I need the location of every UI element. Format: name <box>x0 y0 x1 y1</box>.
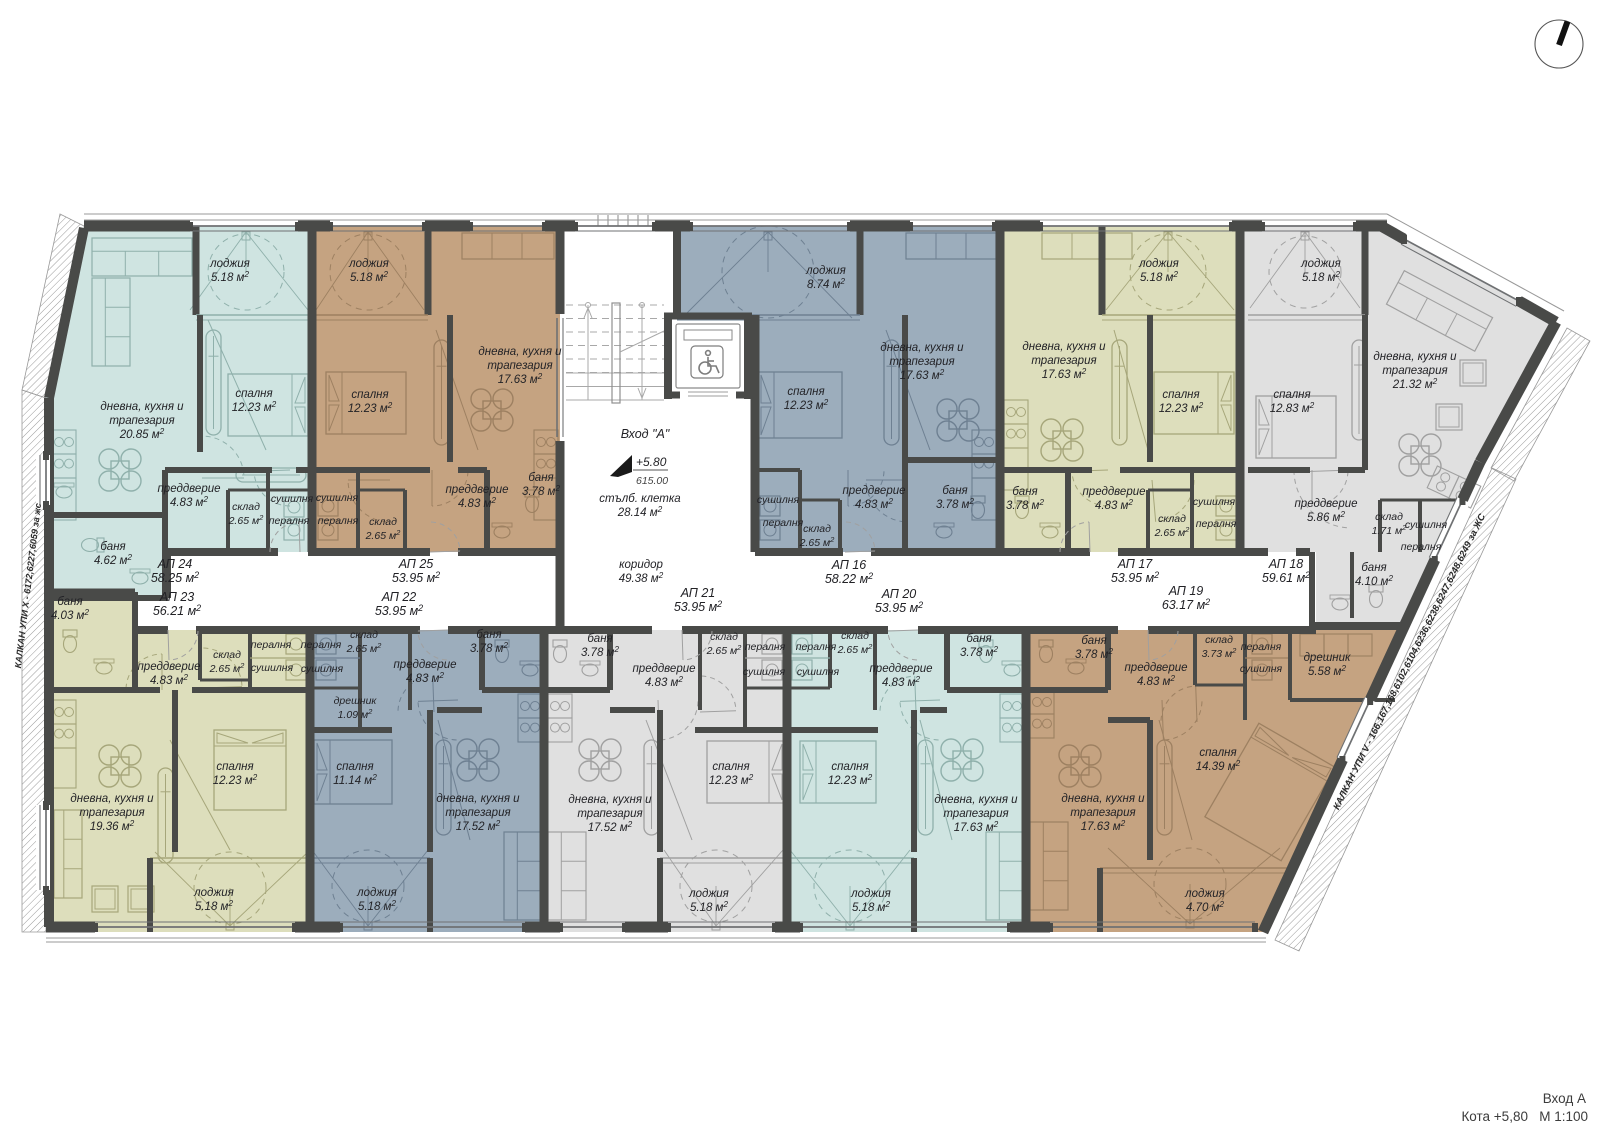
svg-text:4.62 м2: 4.62 м2 <box>94 552 132 567</box>
svg-text:АП 24: АП 24 <box>157 557 193 571</box>
svg-text:5.86 м2: 5.86 м2 <box>1307 509 1345 524</box>
svg-text:2.65 м2: 2.65 м2 <box>837 642 874 656</box>
svg-text:преддверие: преддверие <box>157 483 220 495</box>
svg-text:8.74 м2: 8.74 м2 <box>807 276 845 291</box>
svg-text:4.70 м2: 4.70 м2 <box>1186 899 1224 914</box>
svg-text:28.14 м2: 28.14 м2 <box>617 504 663 519</box>
svg-text:трапезария: трапезария <box>109 415 174 427</box>
svg-text:11.14 м2: 11.14 м2 <box>333 772 377 787</box>
svg-text:спалня: спалня <box>1162 389 1199 401</box>
svg-text:3.78 м2: 3.78 м2 <box>960 644 998 659</box>
svg-text:4.03 м2: 4.03 м2 <box>51 607 89 622</box>
svg-text:5.18 м2: 5.18 м2 <box>195 898 233 913</box>
svg-text:12.23 м2: 12.23 м2 <box>828 772 873 787</box>
svg-text:63.17 м2: 63.17 м2 <box>1162 597 1210 612</box>
svg-text:2.65 м2: 2.65 м2 <box>209 661 246 675</box>
svg-text:АП 25: АП 25 <box>398 557 434 571</box>
svg-text:5.18 м2: 5.18 м2 <box>690 899 728 914</box>
svg-text:53.95 м2: 53.95 м2 <box>1111 570 1159 585</box>
svg-text:трапезария: трапезария <box>1031 355 1096 367</box>
svg-text:баня: баня <box>587 633 612 645</box>
svg-text:баня: баня <box>528 472 553 484</box>
svg-text:дневна, кухня и: дневна, кухня и <box>880 342 964 354</box>
svg-text:12.23 м2: 12.23 м2 <box>709 772 754 787</box>
svg-text:58.22 м2: 58.22 м2 <box>825 571 873 586</box>
svg-text:АП 22: АП 22 <box>381 590 417 604</box>
svg-text:АП 18: АП 18 <box>1268 557 1304 571</box>
svg-text:4.83 м2: 4.83 м2 <box>458 495 496 510</box>
svg-text:53.95 м2: 53.95 м2 <box>392 570 440 585</box>
svg-text:Вход "А": Вход "А" <box>621 427 670 441</box>
svg-text:склад: склад <box>213 649 241 661</box>
svg-text:сушилня: сушилня <box>743 666 786 678</box>
svg-text:17.52 м2: 17.52 м2 <box>588 819 633 834</box>
svg-text:12.23 м2: 12.23 м2 <box>232 399 277 414</box>
svg-text:преддверие: преддверие <box>1124 662 1187 674</box>
svg-text:1.09 м2: 1.09 м2 <box>338 707 374 721</box>
svg-text:склад: склад <box>350 629 378 641</box>
svg-text:56.21 м2: 56.21 м2 <box>153 603 201 618</box>
svg-text:баня: баня <box>1081 635 1106 647</box>
svg-text:14.39 м2: 14.39 м2 <box>1196 758 1241 773</box>
svg-text:стълб. клетка: стълб. клетка <box>599 493 680 505</box>
svg-text:сушилня: сушилня <box>316 492 359 504</box>
svg-text:59.61 м2: 59.61 м2 <box>1262 570 1310 585</box>
svg-text:4.83 м2: 4.83 м2 <box>645 674 683 689</box>
svg-text:17.52 м2: 17.52 м2 <box>456 818 501 833</box>
svg-text:пералня: пералня <box>763 517 804 529</box>
svg-text:баня: баня <box>57 596 82 608</box>
svg-text:АП 20: АП 20 <box>881 587 917 601</box>
svg-text:17.63 м2: 17.63 м2 <box>1042 366 1087 381</box>
svg-text:2.65 м2: 2.65 м2 <box>1154 525 1191 539</box>
svg-text:2.65 м2: 2.65 м2 <box>706 643 743 657</box>
svg-text:баня: баня <box>942 485 967 497</box>
svg-text:20.85 м2: 20.85 м2 <box>119 426 165 441</box>
svg-text:3.73 м2: 3.73 м2 <box>1202 646 1238 660</box>
svg-text:+5.80: +5.80 <box>636 455 667 469</box>
svg-text:2.65 м2: 2.65 м2 <box>346 641 383 655</box>
svg-text:АП 23: АП 23 <box>159 590 195 604</box>
svg-text:3.78 м2: 3.78 м2 <box>1075 646 1113 661</box>
svg-text:склад: склад <box>710 631 738 643</box>
svg-text:49.38 м2: 49.38 м2 <box>619 570 664 585</box>
svg-text:53.95 м2: 53.95 м2 <box>875 600 923 615</box>
svg-text:4.83 м2: 4.83 м2 <box>1137 673 1175 688</box>
svg-text:3.78 м2: 3.78 м2 <box>936 496 974 511</box>
svg-text:4.83 м2: 4.83 м2 <box>150 672 188 687</box>
svg-text:53.95 м2: 53.95 м2 <box>375 603 423 618</box>
svg-text:3.78 м2: 3.78 м2 <box>581 644 619 659</box>
svg-text:склад: склад <box>841 630 869 642</box>
svg-text:спалня: спалня <box>712 761 749 773</box>
svg-text:дневна, кухня и: дневна, кухня и <box>100 401 184 413</box>
svg-text:пералня: пералня <box>1401 541 1442 553</box>
svg-text:пералня: пералня <box>301 639 342 651</box>
svg-text:АП 21: АП 21 <box>680 586 716 600</box>
svg-text:4.83 м2: 4.83 м2 <box>1095 497 1133 512</box>
svg-text:трапезария: трапезария <box>889 356 954 368</box>
svg-text:дневна, кухня и: дневна, кухня и <box>70 793 154 805</box>
svg-text:17.63 м2: 17.63 м2 <box>900 367 945 382</box>
svg-text:12.23 м2: 12.23 м2 <box>1159 400 1204 415</box>
svg-text:19.36 м2: 19.36 м2 <box>90 818 135 833</box>
svg-text:баня: баня <box>100 541 125 553</box>
svg-text:трапезария: трапезария <box>487 360 552 372</box>
svg-text:склад: склад <box>369 516 397 528</box>
svg-text:615.00: 615.00 <box>636 475 668 487</box>
svg-text:17.63 м2: 17.63 м2 <box>954 819 999 834</box>
svg-text:трапезария: трапезария <box>577 808 642 820</box>
svg-text:дневна, кухня и: дневна, кухня и <box>934 794 1018 806</box>
svg-text:12.23 м2: 12.23 м2 <box>348 400 393 415</box>
svg-text:спалня: спалня <box>351 389 388 401</box>
svg-text:сушилня: сушилня <box>251 662 294 674</box>
svg-text:преддверие: преддверие <box>1082 486 1145 498</box>
svg-text:12.83 м2: 12.83 м2 <box>1270 400 1315 415</box>
svg-text:17.63 м2: 17.63 м2 <box>1081 818 1126 833</box>
svg-text:сушилня: сушилня <box>271 493 314 505</box>
svg-text:дневна, кухня и: дневна, кухня и <box>1061 793 1145 805</box>
svg-text:Кота +5,80 М 1:100: Кота +5,80 М 1:100 <box>1461 1109 1588 1124</box>
svg-text:пералня: пералня <box>1241 641 1282 653</box>
svg-text:5.58 м2: 5.58 м2 <box>1308 663 1346 678</box>
svg-text:сушилня: сушилня <box>1405 519 1448 531</box>
svg-text:АП 16: АП 16 <box>831 558 867 572</box>
svg-text:пералня: пералня <box>1196 518 1237 530</box>
svg-text:1.71 м2: 1.71 м2 <box>1372 523 1408 537</box>
svg-text:2.65 м2: 2.65 м2 <box>228 513 265 527</box>
svg-text:пералня: пералня <box>745 641 786 653</box>
svg-text:трапезария: трапезария <box>445 807 510 819</box>
svg-text:преддверие: преддверие <box>445 484 508 496</box>
svg-text:5.18 м2: 5.18 м2 <box>852 899 890 914</box>
svg-text:баня: баня <box>1361 562 1386 574</box>
svg-text:спалня: спалня <box>235 388 272 400</box>
svg-text:преддверие: преддверие <box>393 659 456 671</box>
svg-text:5.18 м2: 5.18 м2 <box>358 898 396 913</box>
svg-text:спалня: спалня <box>1273 389 1310 401</box>
svg-text:5.18 м2: 5.18 м2 <box>1140 269 1178 284</box>
svg-text:17.63 м2: 17.63 м2 <box>498 371 543 386</box>
svg-text:сушилня: сушилня <box>1240 663 1283 675</box>
svg-text:5.18 м2: 5.18 м2 <box>350 269 388 284</box>
svg-text:склад: склад <box>232 501 260 513</box>
svg-text:2.65 м2: 2.65 м2 <box>799 535 836 549</box>
svg-text:преддверие: преддверие <box>137 661 200 673</box>
svg-text:трапезария: трапезария <box>1070 807 1135 819</box>
svg-text:2.65 м2: 2.65 м2 <box>365 528 402 542</box>
svg-text:дневна, кухня и: дневна, кухня и <box>436 793 520 805</box>
svg-text:5.18 м2: 5.18 м2 <box>211 269 249 284</box>
svg-text:4.83 м2: 4.83 м2 <box>170 494 208 509</box>
svg-text:12.23 м2: 12.23 м2 <box>213 772 258 787</box>
svg-text:баня: баня <box>476 629 501 641</box>
svg-text:4.83 м2: 4.83 м2 <box>855 496 893 511</box>
svg-text:пералня: пералня <box>796 641 837 653</box>
svg-text:дневна, кухня и: дневна, кухня и <box>1022 341 1106 353</box>
svg-text:спалня: спалня <box>1199 747 1236 759</box>
svg-text:преддверие: преддверие <box>632 663 695 675</box>
svg-text:спалня: спалня <box>216 761 253 773</box>
svg-text:трапезария: трапезария <box>1382 365 1447 377</box>
svg-text:сушилня: сушилня <box>797 666 840 678</box>
svg-text:склад: склад <box>1205 634 1233 646</box>
svg-text:спалня: спалня <box>336 761 373 773</box>
svg-text:4.83 м2: 4.83 м2 <box>882 674 920 689</box>
svg-text:АП 17: АП 17 <box>1117 557 1154 571</box>
svg-text:пералня: пералня <box>251 639 292 651</box>
svg-text:склад: склад <box>1375 511 1403 523</box>
svg-text:спалня: спалня <box>787 386 824 398</box>
svg-text:склад: склад <box>803 523 831 535</box>
svg-text:сушилня: сушилня <box>757 494 800 506</box>
svg-text:спалня: спалня <box>831 761 868 773</box>
svg-text:трапезария: трапезария <box>79 807 144 819</box>
svg-text:4.83 м2: 4.83 м2 <box>406 670 444 685</box>
svg-text:дрешник: дрешник <box>334 695 378 707</box>
svg-text:дневна, кухня и: дневна, кухня и <box>568 794 652 806</box>
svg-text:баня: баня <box>966 633 991 645</box>
svg-text:5.18 м2: 5.18 м2 <box>1302 269 1340 284</box>
svg-text:12.23 м2: 12.23 м2 <box>784 397 829 412</box>
svg-text:баня: баня <box>1012 486 1037 498</box>
svg-text:3.78 м2: 3.78 м2 <box>1006 497 1044 512</box>
svg-text:склад: склад <box>1158 513 1186 525</box>
svg-text:сушилня: сушилня <box>301 663 344 675</box>
svg-text:Вход А: Вход А <box>1543 1091 1586 1106</box>
svg-text:преддверие: преддверие <box>842 485 905 497</box>
svg-text:коридор: коридор <box>619 559 663 571</box>
svg-text:сушилня: сушилня <box>1193 496 1236 508</box>
svg-text:4.10 м2: 4.10 м2 <box>1355 573 1393 588</box>
svg-text:АП 19: АП 19 <box>1168 584 1204 598</box>
svg-text:3.78 м2: 3.78 м2 <box>522 483 560 498</box>
svg-text:21.32 м2: 21.32 м2 <box>1392 376 1438 391</box>
svg-text:пералня: пералня <box>318 515 359 527</box>
svg-text:преддверие: преддверие <box>869 663 932 675</box>
svg-text:дневна, кухня и: дневна, кухня и <box>478 346 562 358</box>
svg-text:3.78 м2: 3.78 м2 <box>470 640 508 655</box>
svg-text:пералня: пералня <box>269 515 310 527</box>
svg-text:преддверие: преддверие <box>1294 498 1357 510</box>
svg-text:трапезария: трапезария <box>943 808 1008 820</box>
svg-text:дневна, кухня и: дневна, кухня и <box>1373 351 1457 363</box>
svg-text:58.25 м2: 58.25 м2 <box>151 570 199 585</box>
svg-text:53.95 м2: 53.95 м2 <box>674 599 722 614</box>
